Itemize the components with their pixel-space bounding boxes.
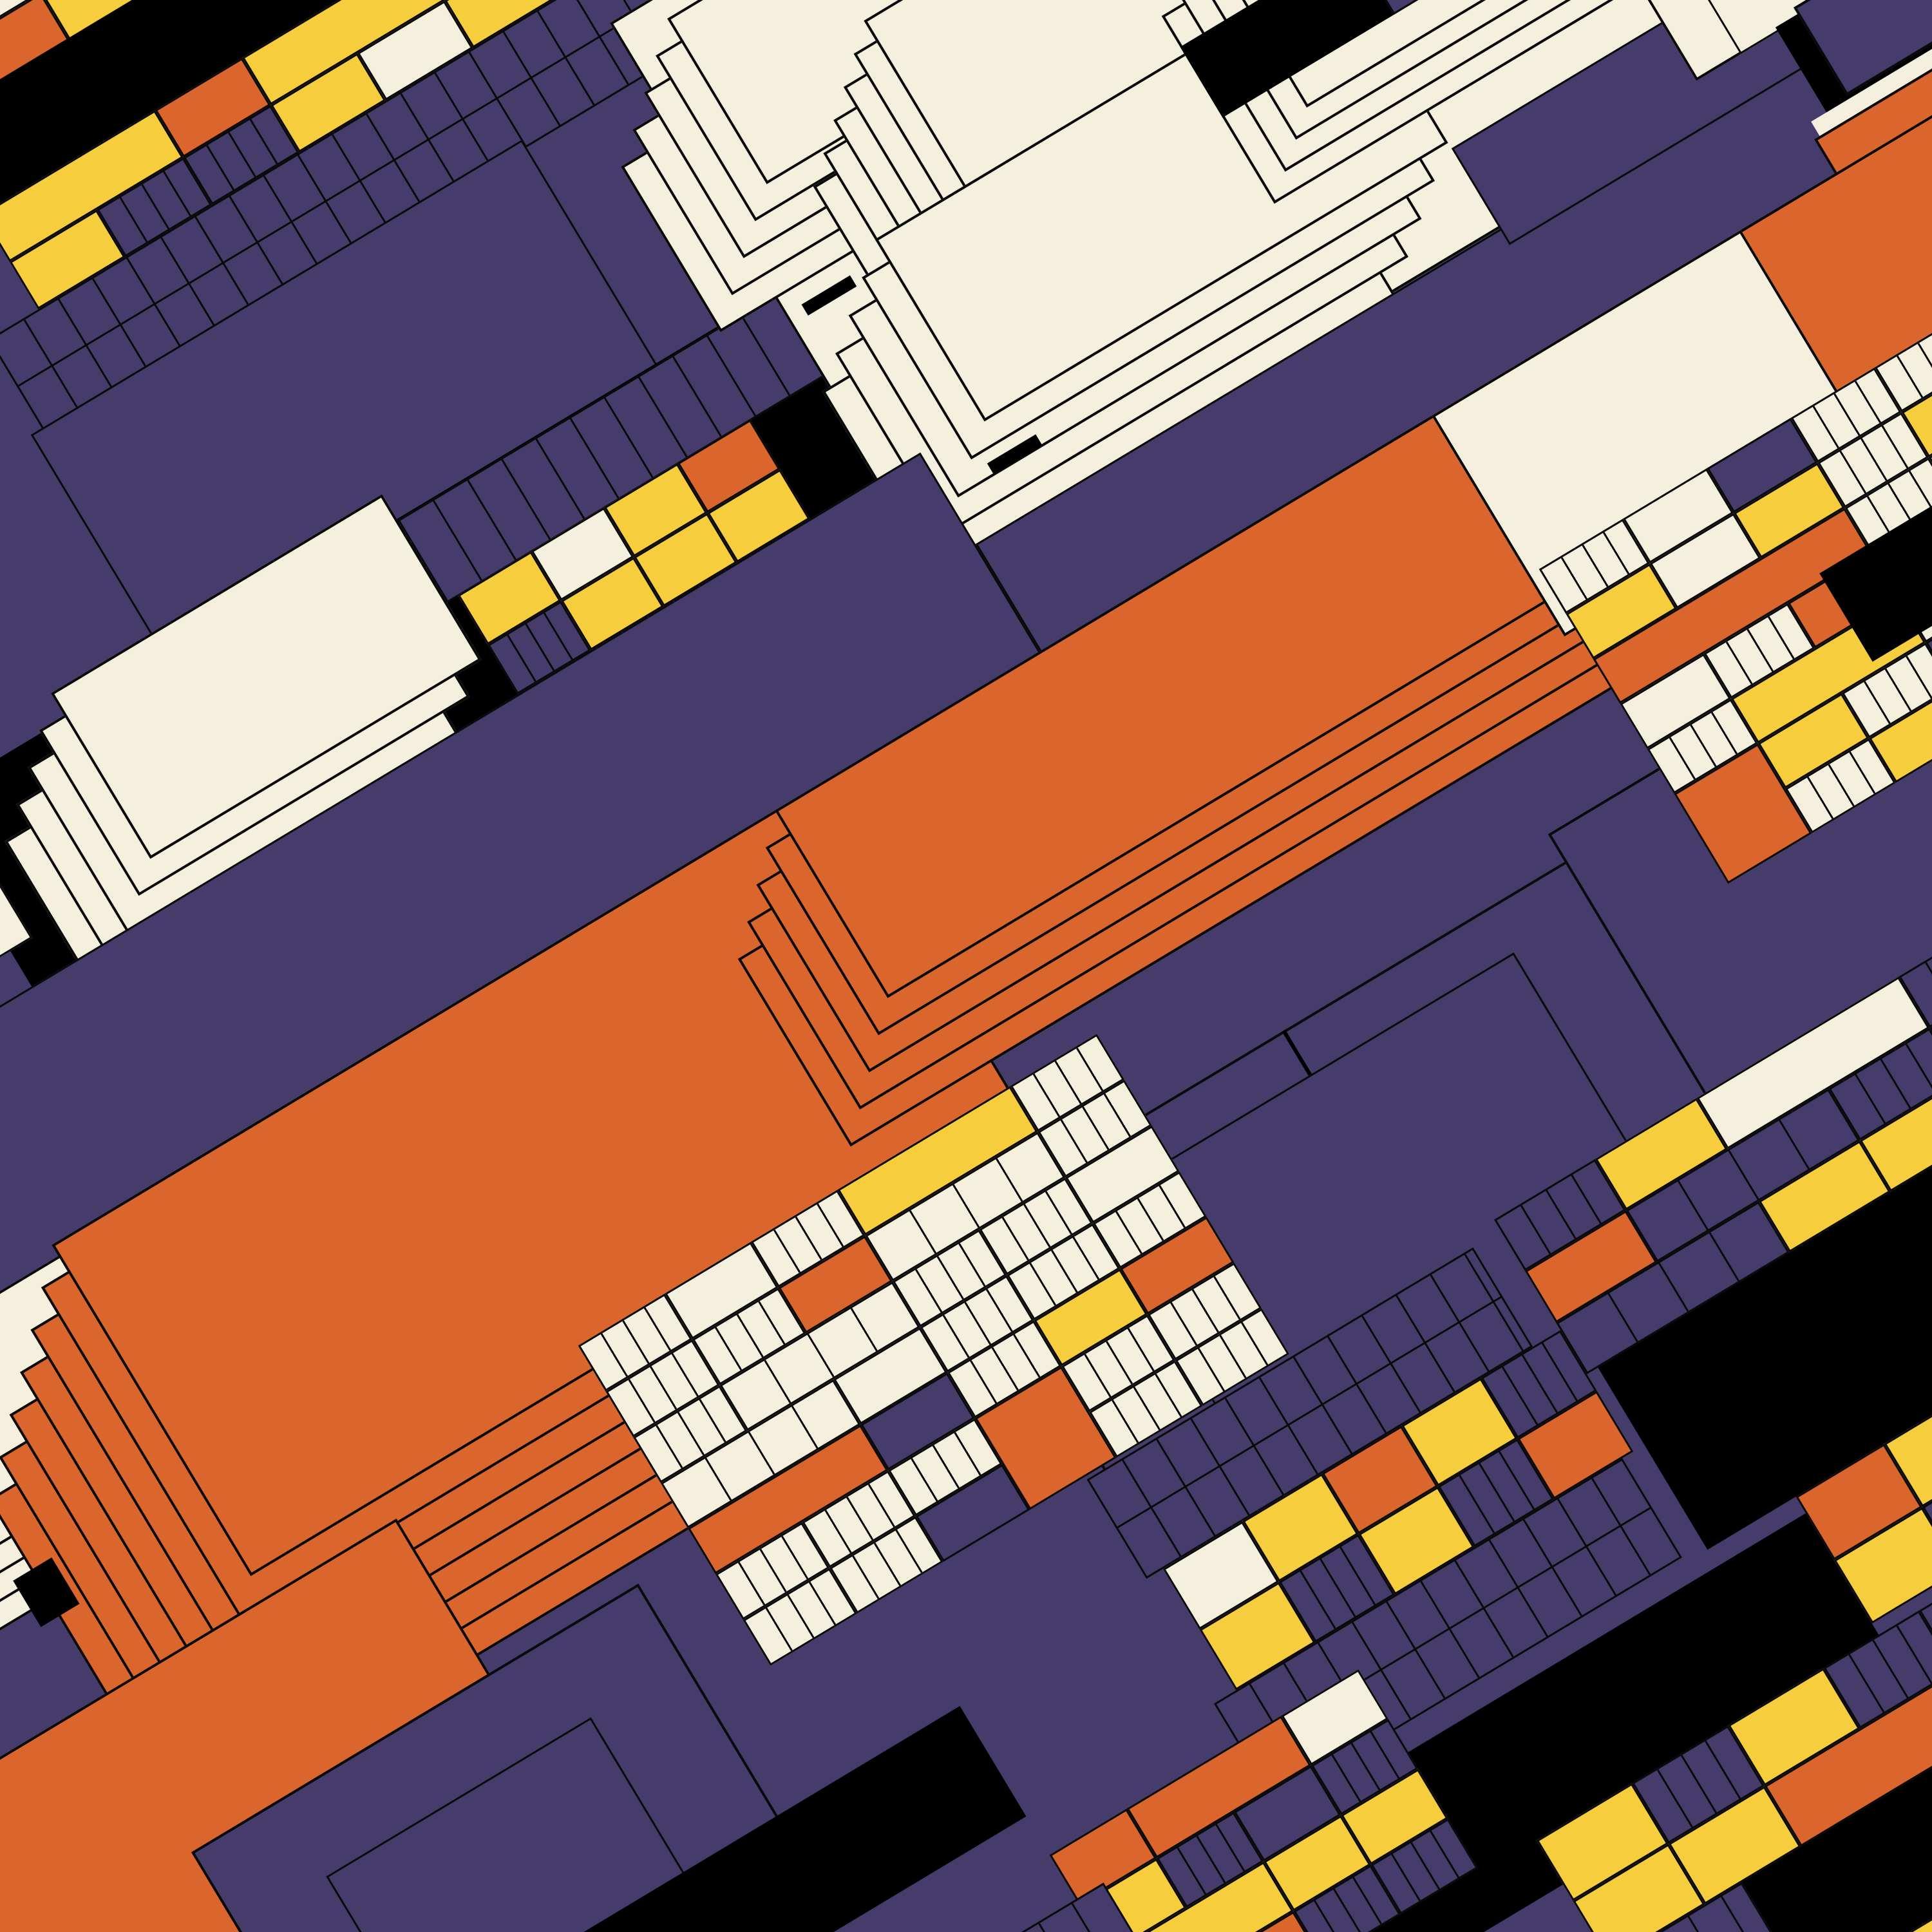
abstract-generative-artwork [0, 0, 1932, 1932]
rotated-plane [0, 0, 1932, 1932]
